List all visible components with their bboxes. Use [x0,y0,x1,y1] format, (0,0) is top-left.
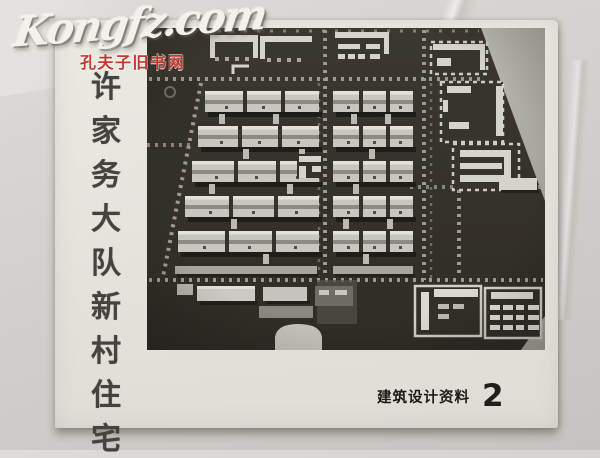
title-char: 队 [86,238,126,282]
book-cover: 许 家 务 大 队 新 村 住 宅 [55,20,558,428]
kongfz-watermark: Kongfz.com 孔夫子旧书网 [18,8,248,78]
title-char: 家 [86,106,126,150]
cover-imprint: 建筑设计资料 2 [377,378,504,414]
title-char: 新 [86,282,126,326]
title-char: 务 [86,150,126,194]
title-char: 住 [86,370,126,414]
title-char: 村 [86,326,126,370]
imprint-issue-number: 2 [482,378,504,414]
imprint-series: 建筑设计资料 [377,386,470,407]
kongfz-caption-text: 孔夫子旧书网 [80,49,185,73]
title-char: 大 [86,194,126,238]
cover-title-vertical: 许 家 务 大 队 新 村 住 宅 [86,62,126,458]
title-char: 宅 [86,414,126,458]
